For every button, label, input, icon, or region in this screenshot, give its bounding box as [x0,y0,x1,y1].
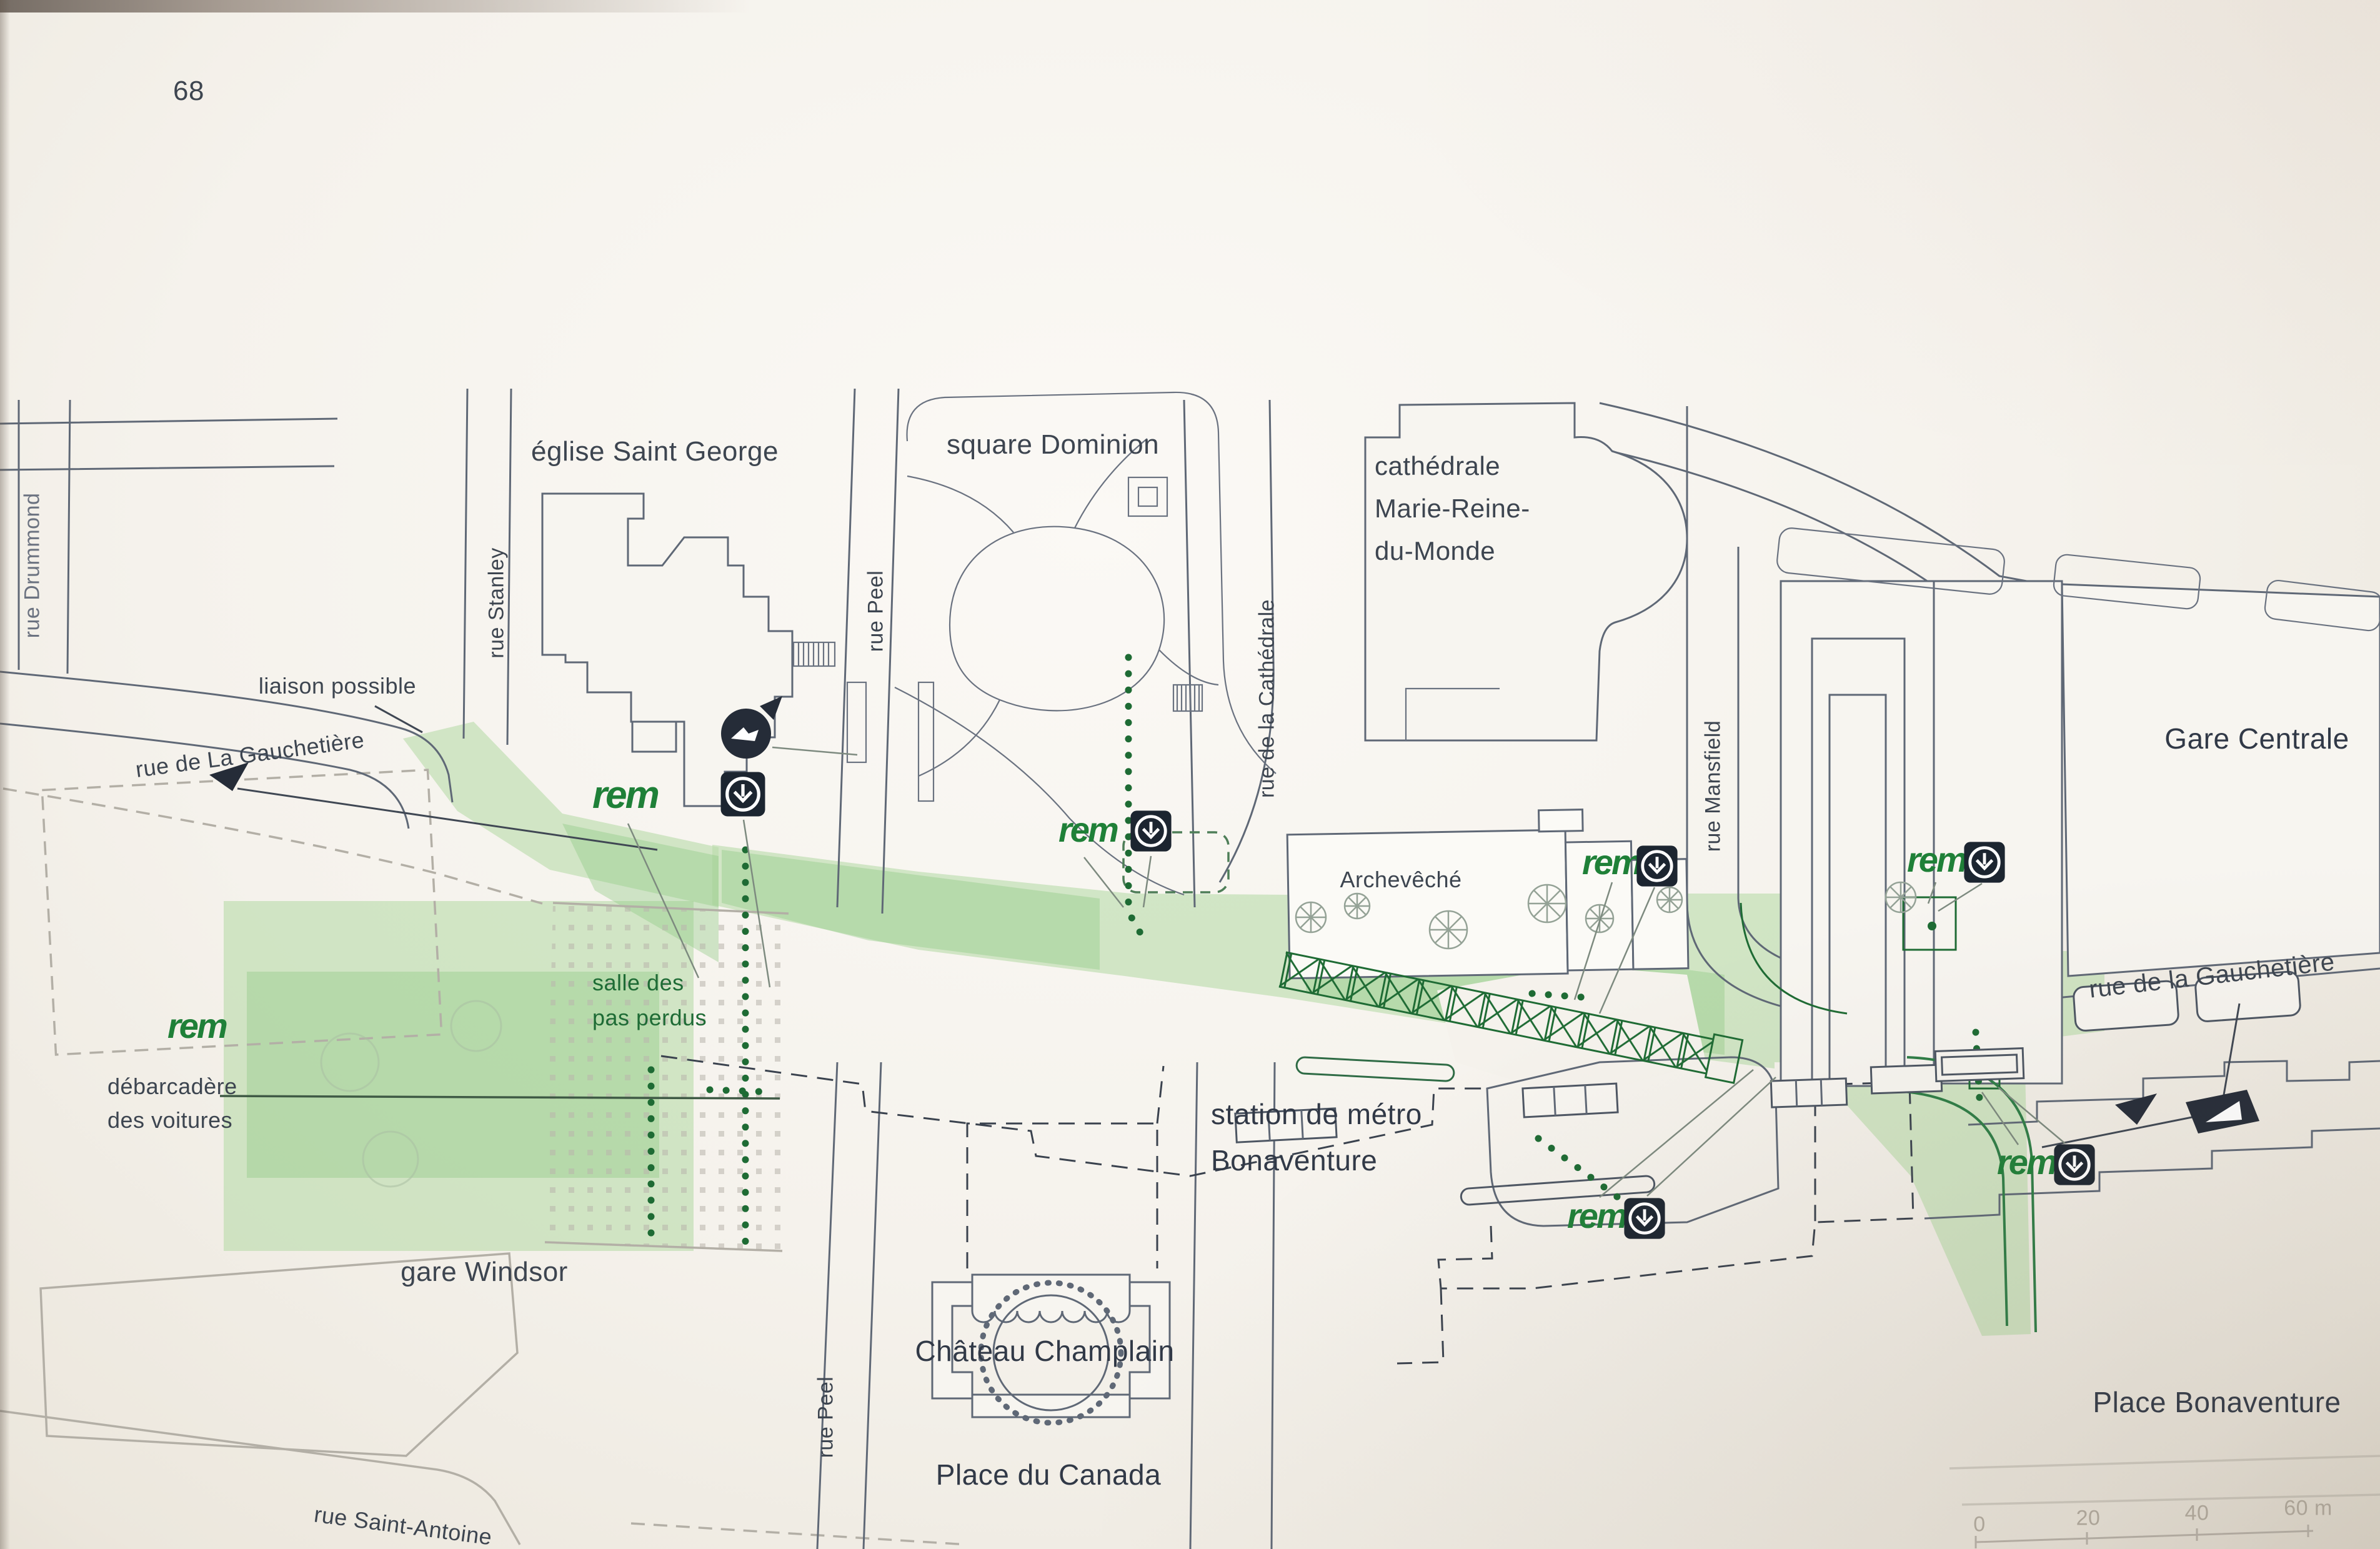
rem-logo-icon: rem [1907,842,1966,877]
label-square-dominion: square Dominion [947,429,1159,461]
scale-tick-60m: 60 m [2284,1497,2333,1521]
label-cathedrale: cathédrale Marie-Reine- du-Monde [1375,445,1530,572]
rem-logo-icon: rem [1567,1198,1626,1233]
label-place-du-canada: Place du Canada [936,1458,1161,1492]
scale-bar [1976,1525,2313,1548]
scale-tick-40: 40 [2185,1502,2209,1526]
rem-logo-icon: rem [1582,845,1641,880]
book-page-photo: 68 église Saint George square Dominion c… [0,0,2380,1549]
label-salle-line2: pas perdus [592,1000,707,1035]
label-station-de-metro-bonaventure: station de métro Bonaventure [1211,1091,1422,1183]
label-salle-line1: salle des [592,965,707,1000]
rem-logo-icon: rem [1058,812,1117,847]
rem-logo-icon: rem [1997,1145,2056,1180]
label-debarcadere-line2: des voitures [107,1103,237,1137]
label-place-bonaventure: Place Bonaventure [2093,1385,2341,1419]
label-eglise-saint-george: église Saint George [531,436,779,467]
label-debarcadere-des-voitures: débarcadère des voitures [107,1070,237,1137]
label-cathedrale-line1: cathédrale [1375,445,1530,487]
label-rue-stanley: rue Stanley [485,547,509,659]
label-gare-windsor: gare Windsor [401,1257,568,1288]
metro-down-arrow-icon [2053,1143,2096,1189]
label-cathedrale-line3: du-Monde [1375,530,1530,572]
page-number: 68 [173,76,204,107]
scale-tick-0: 0 [1973,1513,1985,1537]
label-archeveche: Archevêché [1340,867,1461,893]
metro-down-arrow-icon [1130,810,1172,855]
label-rue-peel-bottom: rue Peel [814,1377,839,1458]
label-salle-des-pas-perdus: salle des pas perdus [592,965,707,1035]
scale-tick-20: 20 [2076,1507,2101,1531]
label-rue-peel-top: rue Peel [864,570,889,652]
label-station-line1: station de métro [1211,1091,1422,1137]
label-rue-drummond: rue Drummond [21,493,45,639]
label-rue-de-la-cathedrale: rue de la Cathédrale [1255,599,1280,798]
label-cathedrale-line2: Marie-Reine- [1375,487,1530,530]
rem-logo-icon: rem [592,776,658,815]
metro-down-arrow-icon [1623,1197,1666,1243]
label-chateau-champlain: Château Champlain [915,1334,1174,1368]
rem-logo-icon: rem [167,1009,226,1043]
label-debarcadere-line1: débarcadère [107,1070,237,1103]
label-gare-centrale: Gare Centrale [2164,722,2349,755]
label-rue-mansfield: rue Mansfield [1701,720,1726,852]
label-station-line2: Bonaventure [1211,1137,1422,1183]
metro-down-arrow-icon [1963,841,2006,887]
metro-down-arrow-icon [720,771,766,820]
label-liaison-possible: liaison possible [259,673,416,699]
map-drawing [0,0,2380,1549]
metro-down-arrow-icon [1636,845,1678,890]
